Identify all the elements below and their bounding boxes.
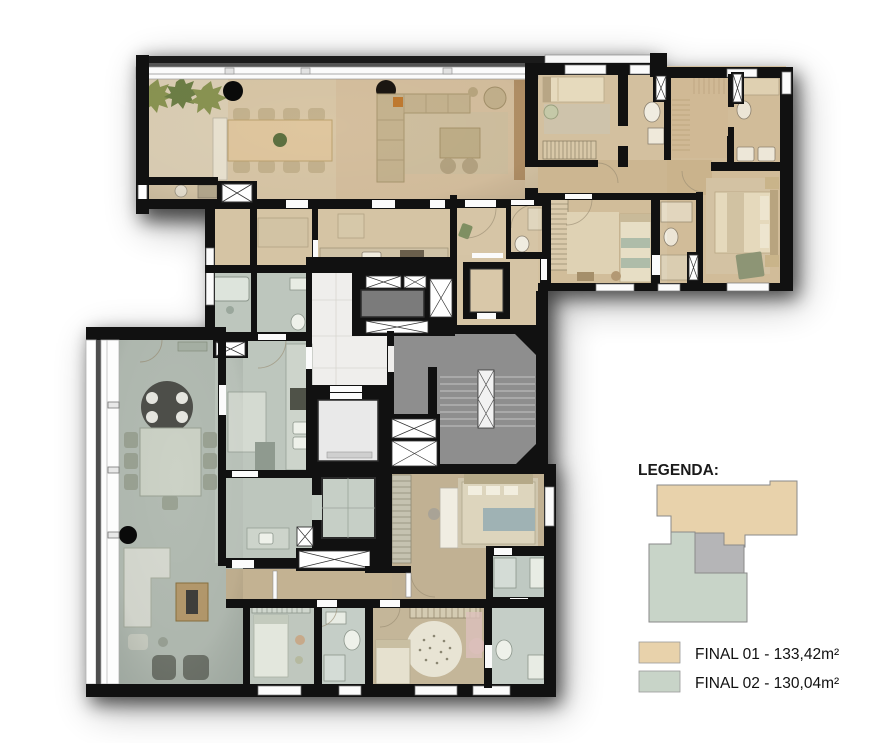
svg-text:FINAL 02 - 130,04m²: FINAL 02 - 130,04m² xyxy=(695,675,839,692)
svg-text:FINAL 01 - 133,42m²: FINAL 01 - 133,42m² xyxy=(695,646,839,663)
svg-text:LEGENDA:: LEGENDA: xyxy=(638,462,719,479)
